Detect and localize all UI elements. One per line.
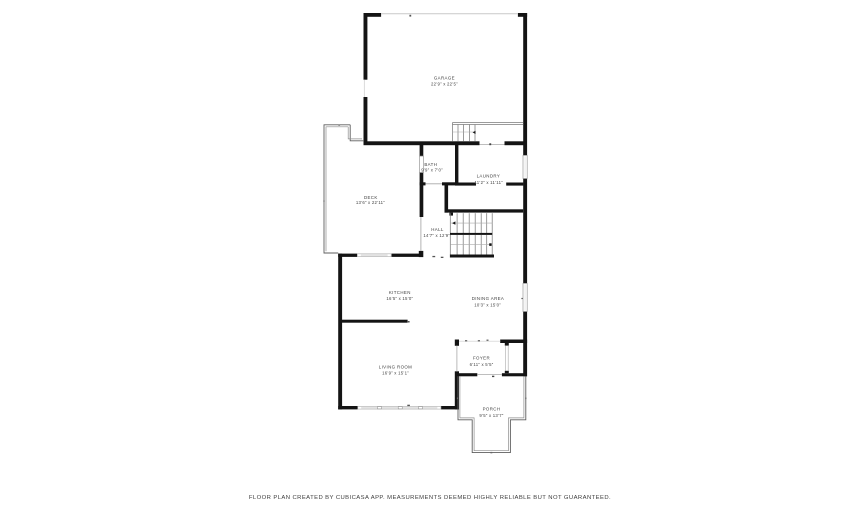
svg-text:11’2” x 11’11”: 11’2” x 11’11” [474, 180, 503, 185]
svg-text:9’9” x 7’0”: 9’9” x 7’0” [421, 168, 443, 173]
svg-text:22’9” x 22’5”: 22’9” x 22’5” [431, 82, 458, 87]
svg-text:16’5” x 15’0”: 16’5” x 15’0” [386, 296, 413, 301]
svg-text:LAUNDRY: LAUNDRY [477, 174, 501, 179]
svg-text:PORCH: PORCH [483, 407, 501, 412]
svg-text:14’7” x 12’9”: 14’7” x 12’9” [423, 233, 450, 238]
svg-text:KITCHEN: KITCHEN [389, 290, 411, 295]
svg-text:FOYER: FOYER [473, 356, 490, 361]
svg-text:BATH: BATH [424, 162, 437, 167]
svg-text:13’6” x 22’11”: 13’6” x 22’11” [356, 200, 385, 205]
svg-text:10’3” x 15’0”: 10’3” x 15’0” [474, 303, 501, 308]
svg-text:16’9” x 15’1”: 16’9” x 15’1” [382, 371, 409, 376]
svg-text:HALL: HALL [431, 227, 444, 232]
svg-text:6’11” x 5’5”: 6’11” x 5’5” [470, 362, 494, 367]
svg-text:DINING AREA: DINING AREA [472, 296, 504, 301]
svg-text:9’5” x 13’7”: 9’5” x 13’7” [479, 413, 503, 418]
svg-text:GARAGE: GARAGE [434, 75, 455, 80]
svg-text:LIVING ROOM: LIVING ROOM [379, 365, 412, 370]
svg-text:FLOOR PLAN CREATED BY CUBICASA: FLOOR PLAN CREATED BY CUBICASA APP. MEAS… [249, 495, 611, 501]
